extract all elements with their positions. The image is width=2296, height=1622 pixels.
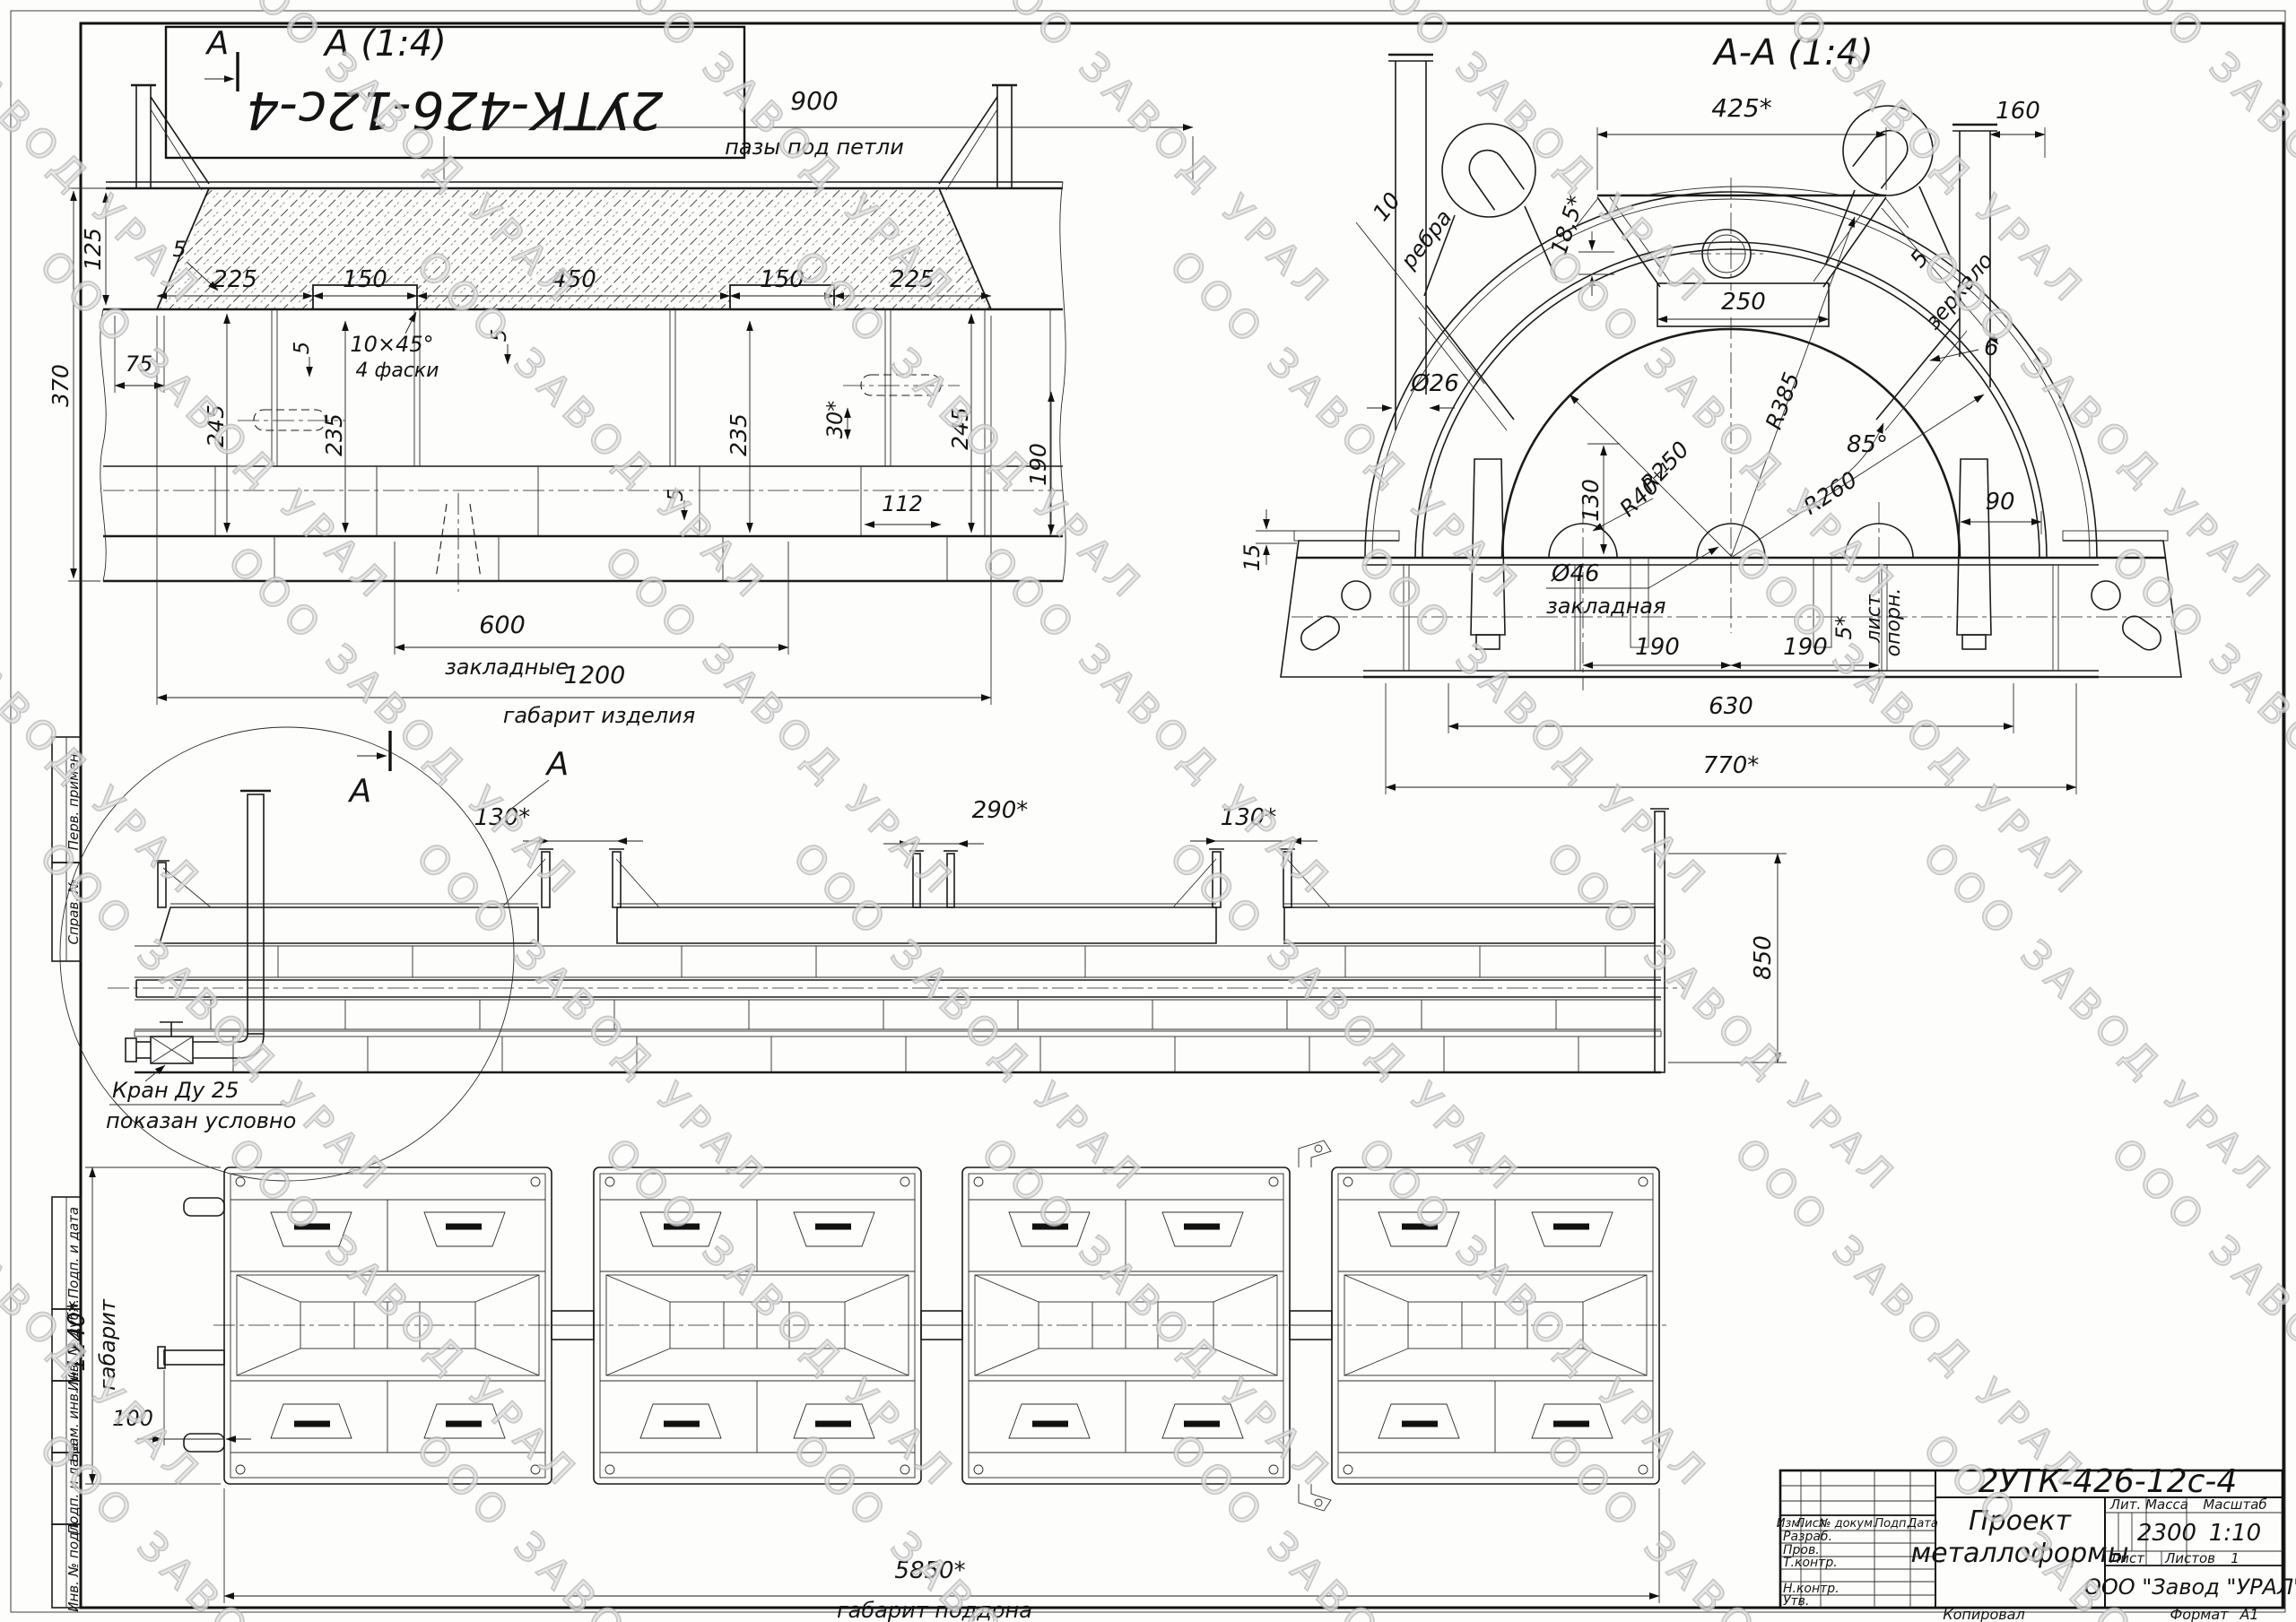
dim-290: 290* (972, 797, 1029, 824)
valve-note: показан условно (106, 1108, 296, 1133)
radius-r260: R260 (1798, 466, 1861, 520)
tb-row: Утв. (1783, 1594, 1809, 1609)
tb-project-name: Проект (1969, 1505, 2073, 1537)
tb-sheet-label: Лист (2109, 1550, 2145, 1566)
dim-250: 250 (1721, 289, 1766, 316)
dim-130: 130* (1221, 804, 1277, 831)
stamp-doc-number: 2УТК-426-12с-4 (247, 80, 664, 141)
dim-425: 425* (1711, 93, 1771, 123)
angle-85: 85° (1847, 431, 1888, 458)
dim-5: 5 (488, 329, 511, 343)
view-aa-cross-section: А-А (1:4) (1239, 32, 2181, 794)
dim-770: 770* (1703, 752, 1760, 779)
tb-mass-value: 2300 (2137, 1520, 2196, 1547)
tb-col: № докум. (1818, 1517, 1876, 1531)
view-aa-dimensions: 425* 160 10 ребра 18,5* 250 5 зеркало 6 … (1239, 93, 2076, 794)
dim-190: 190 (1025, 443, 1051, 486)
dim-245: 245 (203, 404, 229, 447)
frame-label: Инв. № подл. (65, 1519, 82, 1611)
dim-600: 600 (479, 612, 526, 639)
valve-assembly: Кран Ду 25 показан условно (106, 1022, 296, 1133)
tb-sheets-label: Листов (2164, 1550, 2215, 1566)
view-aa-title: А-А (1:4) (1711, 32, 1873, 74)
tb-sheets-value: 1 (2231, 1550, 2239, 1566)
dim-190: 190 (1783, 634, 1828, 661)
dim-chamfer-note: 4 фаски (356, 360, 439, 382)
dim-370: 370 (48, 364, 74, 407)
tb-row: Т.контр. (1783, 1556, 1838, 1570)
title-block: Изм. Лист № докум. Подп. Дата Разраб. Пр… (1777, 1463, 2296, 1622)
section-cut-label: А (348, 773, 372, 810)
dim-chain: 225 (890, 266, 935, 293)
dim-1240-note: габарит (95, 1298, 120, 1391)
tb-scale-value: 1:10 (2209, 1520, 2261, 1547)
tb-scale-label: Масштаб (2203, 1496, 2266, 1513)
format-value: А1 (2239, 1606, 2258, 1622)
tb-doc-number: 2УТК-426-12с-4 (1979, 1463, 2238, 1500)
radius-r385: R385 (1761, 369, 1805, 433)
view-plan: 1240* габарит 100 5850* габарит поддона (64, 1141, 1670, 1622)
dim-75: 75 (126, 351, 153, 377)
dim-1240: 1240* (64, 1300, 91, 1371)
dim-600-note: закладные (445, 655, 569, 680)
copied-label: Копировал (1943, 1606, 2024, 1622)
tb-mass-label: Масса (2145, 1496, 2188, 1513)
frame-label: Перв. примен. (65, 750, 82, 851)
dim-160: 160 (1996, 98, 2040, 125)
dim-235: 235 (726, 413, 752, 456)
tb-company: ООО "Завод "УРАЛ" (2084, 1574, 2296, 1600)
dim-15: 15 (1239, 544, 1265, 572)
dim-130: 130 (1578, 479, 1604, 522)
dim-46: Ø46 (1551, 560, 1600, 587)
dim-chain: 450 (552, 266, 596, 293)
dim-5-mirror: 5 (1905, 245, 1934, 273)
valve-note: Кран Ду 25 (112, 1078, 239, 1103)
dim-chain: 150 (760, 266, 804, 293)
tb-col: Подп. (1874, 1517, 1909, 1531)
view-side-elevation: А А (60, 727, 1787, 1181)
format-label: Формат (2170, 1606, 2230, 1622)
view-a-title: А (1:4) (322, 23, 447, 65)
cad-drawing: 2УТК-426-12с-4 Перв. примен. Справ. № По… (0, 0, 2296, 1622)
dim-850: 850 (1750, 935, 1777, 980)
dim-1200: 1200 (564, 662, 626, 690)
tb-project-name: металлоформы (1910, 1538, 2128, 1569)
frame-label: Подп. и дата (65, 1207, 82, 1298)
dim-112: 112 (882, 491, 923, 516)
dim-chamfer: 10×45° (350, 332, 433, 357)
dim-5: 5 (291, 342, 314, 355)
dim-100: 100 (112, 1406, 153, 1431)
dim-26: Ø26 (1410, 370, 1459, 397)
dim-46-note: закладная (1546, 594, 1665, 619)
dim-190: 190 (1635, 634, 1680, 661)
sheet-note: опорн. (1883, 588, 1905, 657)
dim-245: 245 (947, 407, 973, 450)
frame-label: Справ. № (65, 880, 82, 945)
dim-18-5: 18,5* (1545, 192, 1589, 258)
tb-row: Разраб. (1783, 1530, 1832, 1544)
dim-5: 5 (172, 237, 186, 262)
view-plan-dimensions: 1240* габарит 100 5850* габарит поддона (64, 1167, 1659, 1622)
dim-130: 130* (474, 804, 531, 831)
dim-900-note: пазы под петли (725, 134, 904, 160)
tb-lit-label: Лит. (2109, 1496, 2142, 1513)
dim-5-sheet: 5* (1831, 615, 1857, 639)
section-cut-label: А (205, 25, 230, 62)
dim-5850-note: габарит поддона (837, 1598, 1032, 1622)
dim-5850: 5850* (894, 1557, 965, 1584)
dim-10: 10 (1368, 187, 1405, 226)
dim-chain: 225 (213, 266, 257, 293)
dim-5: 5 (665, 489, 688, 502)
view-side-dimensions: 130* 290* 130* 850 (474, 797, 1787, 1063)
dim-125: 125 (80, 228, 106, 271)
dim-1200-note: габарит изделия (503, 703, 695, 728)
dim-90: 90 (1985, 489, 2014, 516)
dim-chain: 150 (343, 266, 387, 293)
detail-label: А (545, 746, 570, 783)
dim-30: 30* (822, 401, 848, 439)
dim-235: 235 (321, 413, 347, 456)
dim-900: 900 (790, 86, 838, 116)
tb-col: Дата (1907, 1517, 1938, 1531)
drawing-sheet: 2УТК-426-12с-4 Перв. примен. Справ. № По… (0, 0, 2296, 1622)
dim-6: 6 (1984, 334, 1999, 361)
dim-630: 630 (1709, 693, 1753, 720)
